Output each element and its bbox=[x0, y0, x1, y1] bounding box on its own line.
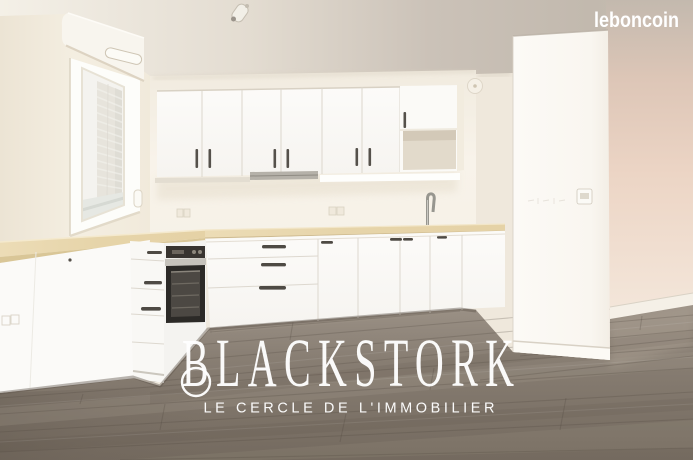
svg-text:leboncoin: leboncoin bbox=[594, 8, 679, 32]
